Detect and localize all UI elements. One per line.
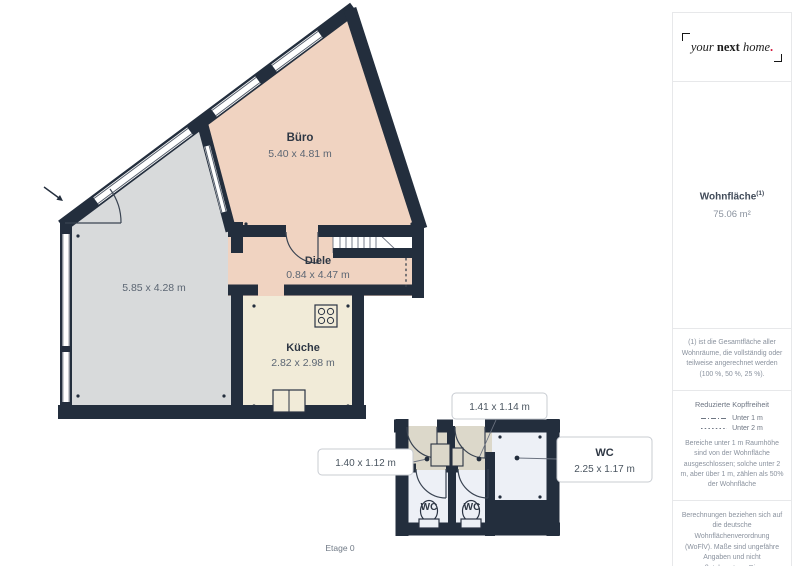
living-area-label-text: Wohnfläche bbox=[700, 191, 756, 202]
disclaimer-text: Berechnungen beziehen sich auf die deuts… bbox=[682, 512, 782, 566]
logo-dot: . bbox=[770, 40, 773, 54]
room-dims-diele: 0.84 x 4.47 m bbox=[286, 269, 350, 281]
area-note-box: (1) ist die Gesamtfläche aller Wohnräume… bbox=[672, 328, 792, 391]
callout-left-text: 1.40 x 1.12 m bbox=[335, 458, 396, 469]
headroom-text: Bereiche unter 1 m Raumhöhe sind von der… bbox=[680, 439, 784, 491]
logo-word-home: home bbox=[743, 40, 770, 54]
legend-under-1m: Unter 1 m bbox=[680, 415, 784, 422]
logo-box: your next home. bbox=[672, 12, 792, 82]
floor-label: Etage 0 bbox=[295, 543, 385, 553]
living-area-superscript: (1) bbox=[756, 190, 764, 197]
callout-right-title: WC bbox=[595, 447, 613, 459]
callout-right: WC 2.25 x 1.17 m bbox=[557, 437, 652, 482]
room-wc-right bbox=[492, 430, 548, 505]
callout-left: 1.40 x 1.12 m bbox=[318, 449, 413, 475]
stove-icon bbox=[315, 305, 337, 327]
info-sidebar: your next home. Wohnfläche(1) 75.06 m² (… bbox=[672, 12, 792, 566]
brand-logo: your next home. bbox=[682, 33, 782, 62]
room-label-wc-left: WC bbox=[421, 502, 438, 513]
dashdot-line-icon bbox=[701, 417, 727, 420]
callout-top: 1.41 x 1.14 m bbox=[452, 393, 547, 419]
living-area-value: 75.06 m² bbox=[713, 209, 751, 220]
room-label-wc-mid: WC bbox=[464, 502, 481, 513]
room-label-buro: Büro bbox=[287, 132, 314, 144]
room-dims-kueche: 2.82 x 2.98 m bbox=[271, 357, 335, 369]
living-area-box: Wohnfläche(1) 75.06 m² bbox=[672, 81, 792, 329]
headroom-box: Reduzierte Kopffreiheit Unter 1 m Unter … bbox=[672, 390, 792, 501]
living-area-label: Wohnfläche(1) bbox=[700, 190, 764, 202]
floorplan-page: Büro 5.40 x 4.81 m 5.85 x 4.28 m Diele 0… bbox=[0, 0, 800, 566]
kitchen-sink-icon bbox=[273, 390, 305, 412]
headroom-title: Reduzierte Kopffreiheit bbox=[680, 400, 784, 409]
area-note-text: (1) ist die Gesamtfläche aller Wohnräume… bbox=[682, 339, 783, 378]
logo-word-your: your bbox=[691, 40, 714, 54]
legend-under-1m-label: Unter 1 m bbox=[732, 415, 763, 422]
disclaimer-box: Berechnungen beziehen sich auf die deuts… bbox=[672, 500, 792, 566]
room-label-kueche: Küche bbox=[286, 342, 320, 354]
legend-under-2m: Unter 2 m bbox=[680, 425, 784, 432]
legend-under-2m-label: Unter 2 m bbox=[732, 425, 763, 432]
room-dims-buro: 5.40 x 4.81 m bbox=[268, 148, 332, 160]
callout-right-text: 2.25 x 1.17 m bbox=[574, 464, 635, 475]
room-dims-living: 5.85 x 4.28 m bbox=[122, 282, 186, 294]
room-label-diele: Diele bbox=[305, 255, 331, 267]
entry-arrow-icon bbox=[44, 187, 63, 201]
callout-top-text: 1.41 x 1.14 m bbox=[469, 402, 530, 413]
dotted-line-icon bbox=[701, 427, 727, 430]
logo-word-next: next bbox=[717, 40, 740, 54]
